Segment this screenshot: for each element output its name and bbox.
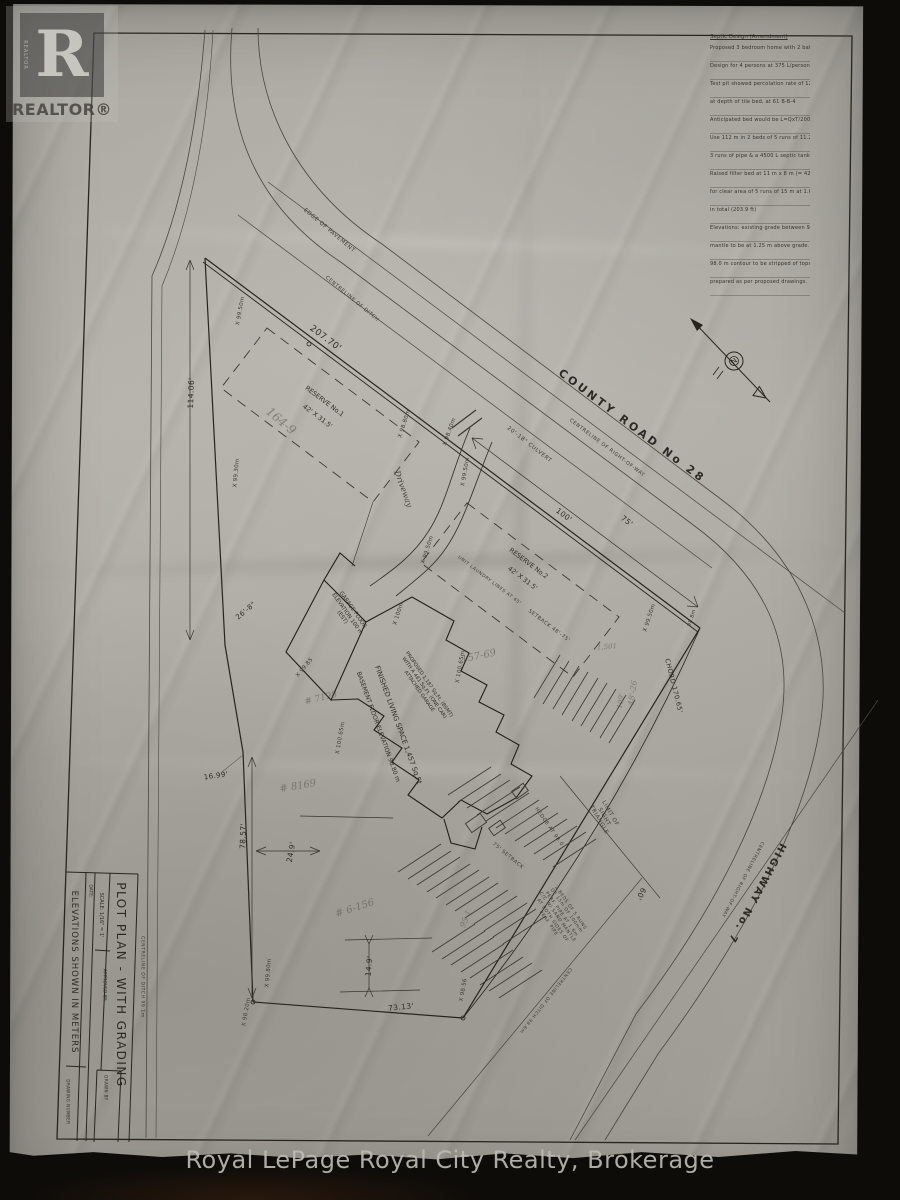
spot-elevation-8: X 100m <box>392 602 405 626</box>
driveway-label: Driveway <box>392 469 414 508</box>
pencil-note-1: 164-9 <box>263 404 299 437</box>
dim-24-9: 24.9' <box>285 841 297 863</box>
titleblock-drawn-label: DRAWN BY <box>104 1075 109 1100</box>
note-line: prepared as per proposed drawings. <box>710 278 810 296</box>
spot-elevation-6: X 99.50m <box>642 603 657 633</box>
dim-16-99: 16.99' <box>203 770 228 782</box>
brokerage-caption: Royal LePage Royal City Realty, Brokerag… <box>0 1146 900 1174</box>
titleblock-number-label: DRAWING NUMBER <box>66 1079 71 1124</box>
spot-elevation-11: X 99.85 <box>295 657 315 679</box>
hedge-note: HEDGE AT 98.0 <box>533 806 564 847</box>
garage-floor-note: GARAGE FLOORELEVATION 100 m(EST) <box>325 588 370 640</box>
spot-elevation-12: X 99.80m <box>264 958 273 987</box>
pencil-note-6: # 6-156 <box>334 897 376 921</box>
setback-note: SETBACK 48'-75' <box>527 608 571 643</box>
titleblock-scale: SCALE: 1/16" = 1' <box>98 893 104 938</box>
dim-78-57: 78.57' <box>238 823 248 849</box>
note-line: Elevations: existing grade between 98.0 … <box>710 224 810 242</box>
proposed-house-note: PROPOSED 1,187 Sq.Ft. (BSMT)WITH A 481 S… <box>394 651 454 726</box>
setback-75: 75' SETBACK <box>491 841 525 871</box>
spot-elevation-1: X 99.50m <box>235 296 247 326</box>
note-line: Proposed 3 bedroom home with 2 bathrooms <box>710 44 810 62</box>
spot-elevation-3: X 98.80m <box>397 409 412 439</box>
note-line: at depth of tile bed, at 61 B-B-4 <box>710 98 810 116</box>
dim-60: 60' <box>634 886 648 902</box>
pencil-note-7: 95-1 <box>458 909 474 929</box>
septic-design-notes: Septic Design (Amendment) Proposed 3 bed… <box>710 34 810 296</box>
note-line: 3 runs of pipe & a 4500 L septic tank (1… <box>710 152 810 170</box>
dim-75: 75' <box>619 514 635 529</box>
pencil-note-4: # 7198 <box>304 690 339 709</box>
ditch-centreline-top: CENTRELINE OF DITCH <box>324 275 380 323</box>
note-line: Use 112 m in 2 beds of 5 runs of 11.2 m … <box>710 134 810 152</box>
photo-of-plot-plan: { "watermark": { "logo_letter": "R", "lo… <box>0 0 900 1200</box>
note-line: Design for 4 persons at 375 L/person/day… <box>710 62 810 80</box>
spot-elevation-5: X 99.50m <box>460 457 472 487</box>
pencil-note-9: 109' <box>616 693 627 710</box>
spot-elevation-15: X 98.20m <box>241 997 253 1027</box>
edge-of-pavement: EDGE OF PAVEMENT <box>302 207 356 254</box>
dim-207-70: 207.70' <box>307 324 343 355</box>
reserve2-note: UNIT LAUNDRY LINES AT 45' <box>456 555 522 606</box>
titleblock-title: PLOT PLAN - WITH GRADING <box>114 882 128 1087</box>
septic-notes-title: Septic Design (Amendment) <box>710 34 810 40</box>
realtor-wordmark: REALTOR® <box>10 100 114 119</box>
dim-100: 100' <box>554 506 574 524</box>
note-line: in total (203.9 ft) <box>710 206 810 224</box>
titleblock-approved-label: APPROVED BY: <box>102 969 107 1001</box>
septic-notes-body: Proposed 3 bedroom home with 2 bathrooms… <box>710 44 810 296</box>
spot-elevation-7: X 99.50m <box>420 535 435 565</box>
pencil-note-3: 48'-26 <box>626 680 639 706</box>
realtor-logo-icon: R REALTOR <box>20 13 104 97</box>
spot-elevation-2: X 99.30m <box>232 458 241 487</box>
septic-bed-note: 2 BEDS OF 5 RUNSOF 15m OF 100mmPERF. PIP… <box>529 882 590 950</box>
spot-elevation-4: X 98.40m <box>442 417 458 447</box>
spot-elevation-13: X 98.56 <box>459 978 470 1002</box>
note-line: 98.0 m contour to be stripped of topsoil… <box>710 260 810 278</box>
dim-114-06: 114.06' <box>186 377 196 408</box>
spot-elevation-14: 98.8m <box>686 609 697 628</box>
sight-triangle-note: LIMIT OFSIGHTTRIANGLE <box>587 798 620 836</box>
dim-chord: CHORD 170.65' <box>662 658 683 714</box>
ditch-centreline-left: CENTRELINE OF DITCH 99.1m <box>139 936 144 1018</box>
note-line: Test pit showed percolation rate of 12.5… <box>710 80 810 98</box>
realtor-watermark: R REALTOR REALTOR® <box>6 6 118 122</box>
realtor-logo-letter: R <box>35 23 88 87</box>
dim-14-9: 14.9' <box>364 955 375 976</box>
spot-elevation-9: X 100.65m <box>335 721 347 754</box>
ditch-centreline-br: CENTRELINE OF DITCH 98.6m <box>518 966 573 1034</box>
note-line: Anticipated bed would be L=QxT/200 = 150… <box>710 116 810 134</box>
dim-73-13: 73.13' <box>388 1001 415 1013</box>
pencil-note-5: # 8169 <box>279 778 318 796</box>
dim-26-8: 26'-8" <box>234 600 257 621</box>
note-line: mantle to be at 1.25 m above grade. Area… <box>710 242 810 260</box>
proposed-house-note-line: WITH A 481 Sq.Ft. (ONE CAR) <box>399 654 449 722</box>
realtor-logo-vertical-text: REALTOR <box>22 40 28 70</box>
titleblock-elevations-note: ELEVATIONS SHOWN IN METERS <box>69 891 79 1054</box>
note-line: for clear area of 5 runs of 15 m at 1.6 … <box>710 188 810 206</box>
note-line: Raised filter bed at 11 m x 8 m (= 42' x… <box>710 170 810 188</box>
culvert-note: 20'-18" CULVERT <box>505 425 552 464</box>
titleblock-date-label: DATE: <box>88 884 93 897</box>
pencil-note-8: 1,501 <box>597 642 618 652</box>
